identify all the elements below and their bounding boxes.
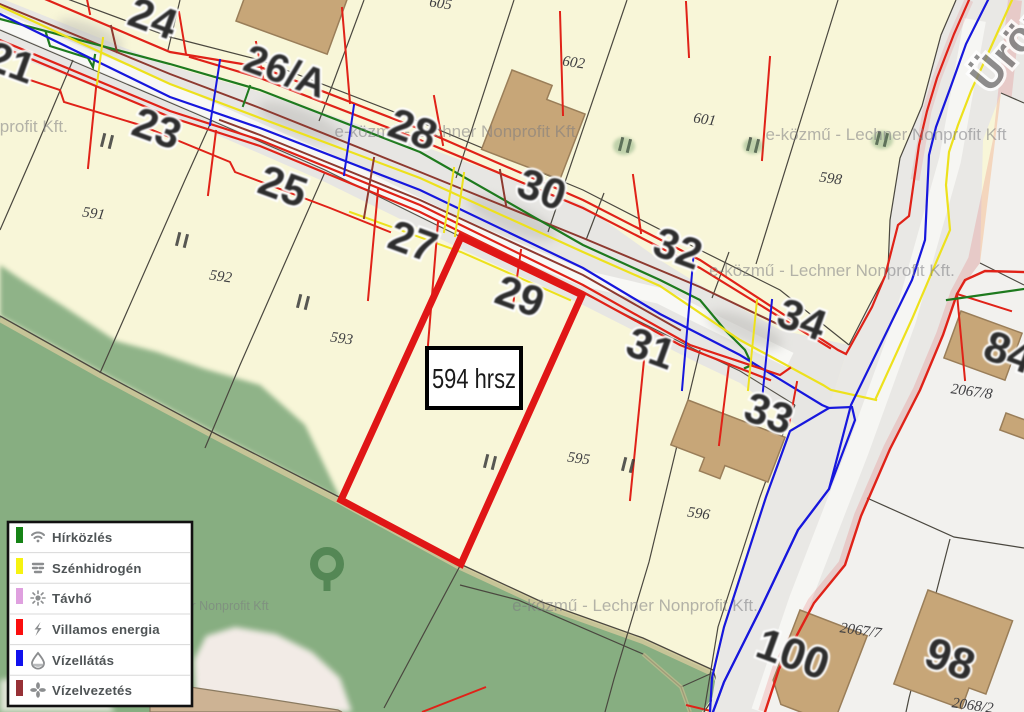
svg-text:e-közmű - Lechner Nonprofit Kf: e-közmű - Lechner Nonprofit Kft bbox=[766, 125, 1007, 144]
svg-text:596: 596 bbox=[686, 505, 711, 524]
svg-text:591: 591 bbox=[81, 205, 106, 224]
svg-text:595: 595 bbox=[566, 450, 591, 469]
svg-text:Szénhidrogén: Szénhidrogén bbox=[52, 561, 142, 576]
svg-text:Távhő: Távhő bbox=[52, 591, 92, 606]
svg-text:Hírközlés: Hírközlés bbox=[52, 530, 112, 545]
svg-text:Villamos energia: Villamos energia bbox=[52, 622, 160, 637]
svg-text:602: 602 bbox=[561, 54, 586, 73]
svg-text:601: 601 bbox=[692, 111, 717, 130]
svg-text:593: 593 bbox=[329, 330, 354, 349]
svg-text:Vízellátás: Vízellátás bbox=[52, 653, 114, 668]
svg-text:592: 592 bbox=[208, 268, 233, 287]
svg-text:e-közmű - Lechner Nonprofit Kf: e-közmű - Lechner Nonprofit Kft. bbox=[0, 117, 68, 136]
svg-text:Vízelvezetés: Vízelvezetés bbox=[52, 683, 132, 698]
svg-text:594 hrsz: 594 hrsz bbox=[432, 363, 516, 394]
svg-text:e-közmű - Lechner Nonprofit Kf: e-közmű - Lechner Nonprofit Kft. bbox=[512, 596, 758, 615]
svg-text:e-közmű - Lechner Nonprofit Kf: e-közmű - Lechner Nonprofit Kft. bbox=[709, 261, 955, 280]
svg-text:598: 598 bbox=[818, 170, 843, 189]
svg-text:e-közmű - Lechner Nonprofit Kf: e-közmű - Lechner Nonprofit Kft bbox=[335, 122, 576, 141]
